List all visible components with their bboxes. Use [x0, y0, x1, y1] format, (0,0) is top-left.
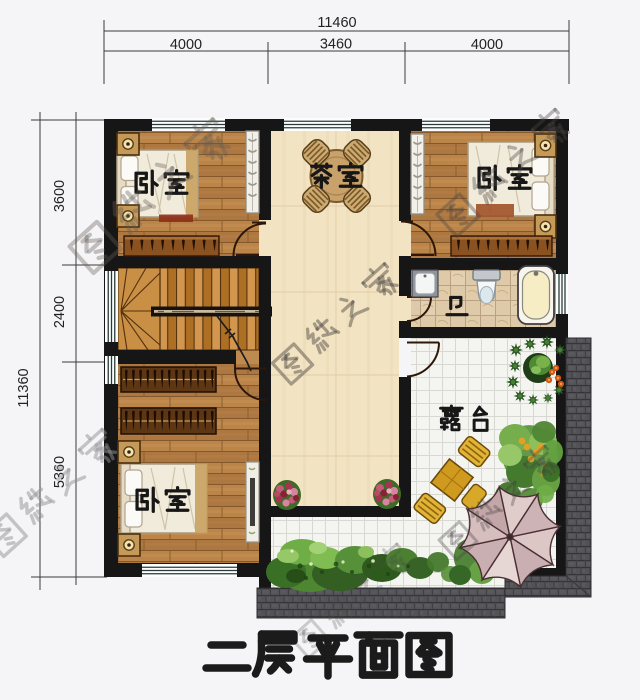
svg-text:4000: 4000 [170, 37, 202, 53]
svg-text:11360: 11360 [16, 368, 32, 407]
svg-text:11460: 11460 [317, 15, 356, 31]
svg-text:3460: 3460 [320, 37, 352, 53]
svg-text:4000: 4000 [471, 37, 503, 53]
svg-text:3600: 3600 [52, 180, 68, 212]
svg-text:2400: 2400 [52, 296, 68, 328]
